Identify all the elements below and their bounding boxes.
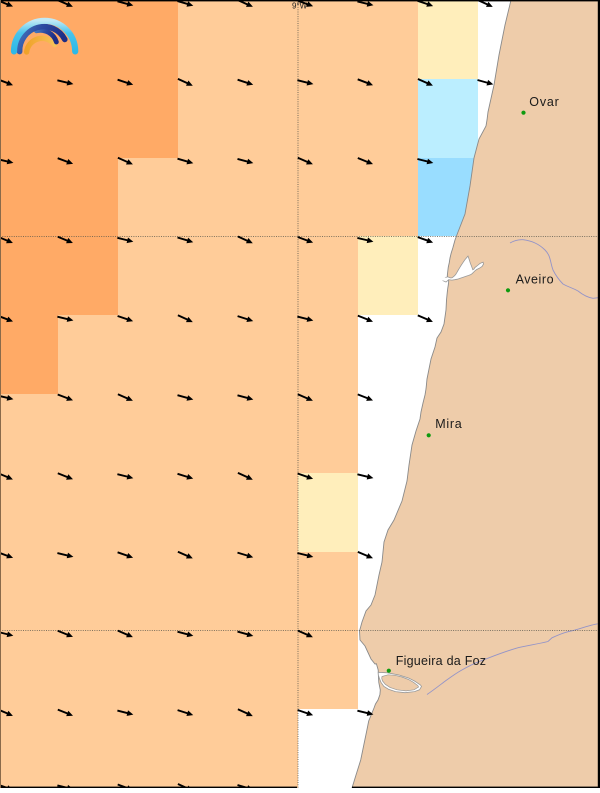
svg-text:Figueira da Foz: Figueira da Foz [396,654,487,668]
svg-text:Aveiro: Aveiro [516,273,555,287]
svg-text:Mira: Mira [435,417,462,431]
svg-text:Ovar: Ovar [529,95,559,109]
